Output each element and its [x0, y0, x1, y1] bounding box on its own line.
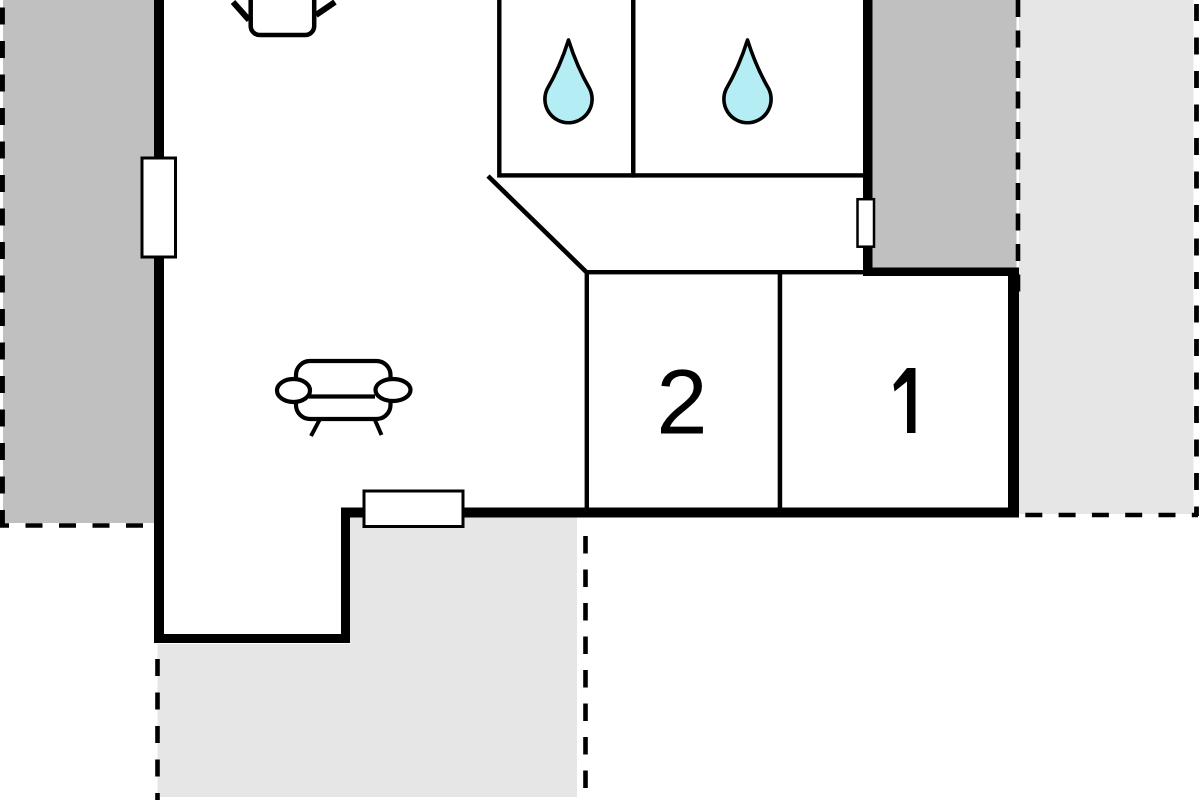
svg-text:2: 2	[656, 352, 707, 454]
